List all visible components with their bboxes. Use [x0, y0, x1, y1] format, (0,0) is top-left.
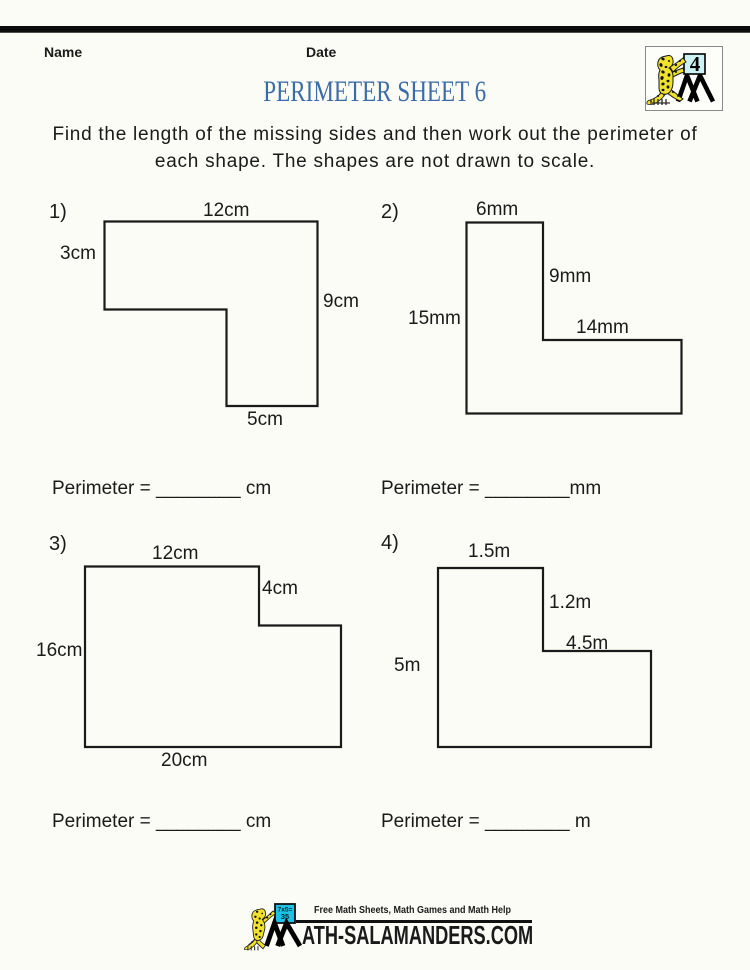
svg-text:35: 35	[281, 912, 289, 921]
